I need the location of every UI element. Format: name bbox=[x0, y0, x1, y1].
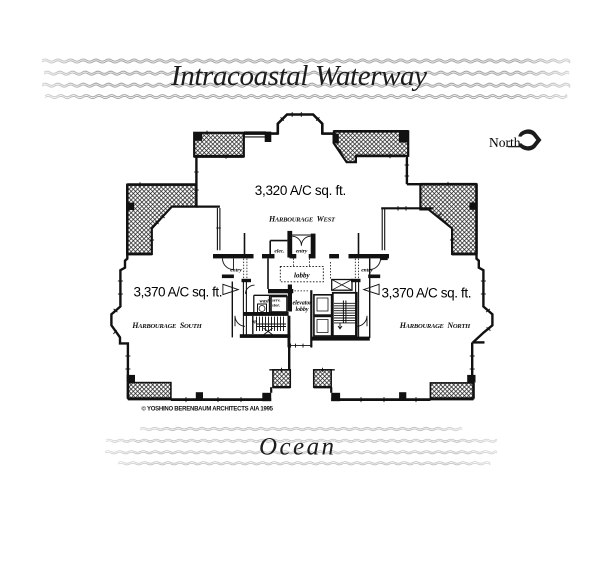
svg-text:lobby: lobby bbox=[296, 307, 309, 313]
svg-text:elec.: elec. bbox=[274, 249, 284, 255]
svg-text:North: North bbox=[489, 135, 521, 150]
svg-text:Ocean: Ocean bbox=[259, 434, 334, 461]
svg-text:HARBOURAGE NORTH: HARBOURAGE NORTH bbox=[399, 321, 471, 330]
svg-text:HARBOURAGE WEST: HARBOURAGE WEST bbox=[268, 215, 336, 224]
svg-text:entry: entry bbox=[361, 268, 373, 274]
svg-text:stor.: stor. bbox=[271, 303, 280, 308]
svg-text:3,320 A/C sq. ft.: 3,320 A/C sq. ft. bbox=[255, 183, 347, 198]
svg-text:entry: entry bbox=[230, 268, 242, 274]
svg-text:Intracoastal Waterway: Intracoastal Waterway bbox=[170, 60, 427, 92]
svg-text:© YOSHINO BERENBAUM ARCHITECTS: © YOSHINO BERENBAUM ARCHITECTS AIA 1995 bbox=[142, 405, 274, 412]
svg-text:3,370 A/C sq. ft.: 3,370 A/C sq. ft. bbox=[134, 285, 223, 300]
svg-text:3,370 A/C sq. ft.: 3,370 A/C sq. ft. bbox=[382, 286, 472, 301]
svg-text:up: up bbox=[252, 319, 258, 324]
svg-text:entry: entry bbox=[296, 249, 308, 255]
svg-text:wash: wash bbox=[260, 300, 271, 305]
svg-text:lobby: lobby bbox=[294, 272, 310, 280]
svg-text:elevator: elevator bbox=[293, 301, 313, 307]
svg-text:HARBOURAGE SOUTH: HARBOURAGE SOUTH bbox=[131, 321, 202, 330]
